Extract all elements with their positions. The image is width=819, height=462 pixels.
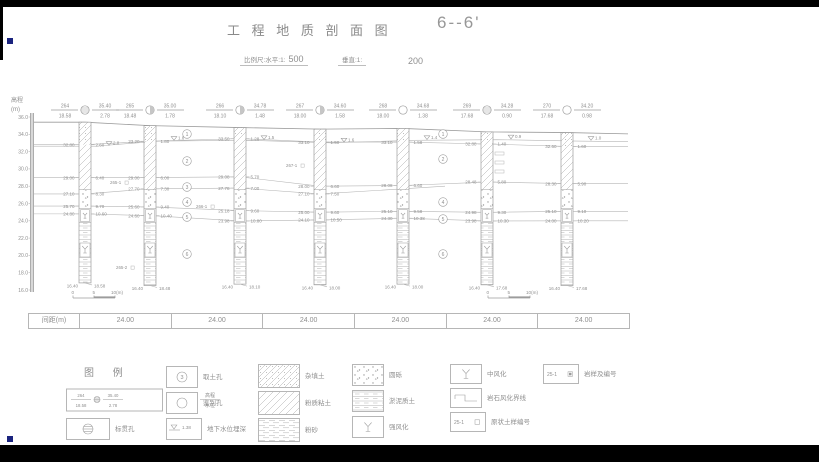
svg-text:5.80: 5.80: [498, 180, 507, 185]
svg-text:1.4: 1.4: [431, 135, 438, 140]
spacing-value-cell: 24.00: [446, 314, 538, 328]
svg-text:9.58: 9.58: [414, 209, 423, 214]
spacing-value-cell: 24.00: [171, 314, 263, 328]
spacing-table-label: 间距(m): [29, 314, 79, 328]
svg-text:9.60: 9.60: [331, 210, 340, 215]
svg-text:5.90: 5.90: [578, 181, 587, 186]
svg-text:9.30: 9.30: [498, 210, 507, 215]
svg-text:33.10: 33.10: [381, 140, 393, 145]
svg-text:18.48: 18.48: [124, 114, 137, 120]
svg-text:9.60: 9.60: [251, 208, 260, 213]
svg-text:1.50: 1.50: [331, 140, 340, 145]
svg-text:6.00: 6.00: [161, 175, 170, 180]
svg-text:6.60: 6.60: [414, 183, 423, 188]
svg-text:2.78: 2.78: [100, 114, 110, 120]
svg-text:7.30: 7.30: [161, 186, 170, 191]
svg-text:2: 2: [442, 157, 445, 163]
svg-text:270: 270: [543, 104, 552, 110]
svg-text:22.0: 22.0: [18, 236, 28, 242]
svg-text:34.68: 34.68: [417, 104, 430, 110]
svg-text:1.58: 1.58: [414, 140, 423, 145]
svg-text:25.18: 25.18: [218, 208, 230, 213]
spacing-value-cell: 24.00: [79, 314, 171, 328]
svg-text:1.6: 1.6: [348, 137, 355, 142]
svg-text:266-1: 266-1: [196, 204, 208, 209]
svg-text:28.00: 28.00: [298, 184, 310, 189]
svg-text:18.48: 18.48: [159, 286, 171, 291]
svg-text:26.0: 26.0: [18, 201, 28, 207]
svg-text:1: 1: [442, 132, 445, 138]
screenshot-canvas: { "page": {"bg":"#ffffff","bar":"#000000…: [0, 0, 819, 462]
svg-text:10.38: 10.38: [414, 216, 426, 221]
svg-text:268: 268: [379, 104, 388, 110]
svg-text:32.0: 32.0: [18, 149, 28, 155]
svg-text:2.8: 2.8: [113, 141, 120, 146]
svg-text:(m): (m): [11, 107, 20, 113]
svg-text:1: 1: [186, 132, 189, 138]
svg-text:16.40: 16.40: [222, 285, 234, 290]
strata-lines: [34, 122, 628, 221]
svg-text:18.58: 18.58: [94, 283, 106, 288]
svg-text:16.40: 16.40: [469, 285, 481, 290]
spacing-value-cell: 24.00: [262, 314, 354, 328]
borehole-265: 26518.4835.001.7833.201.8029.006.0027.70…: [116, 104, 185, 292]
svg-text:0.9: 0.9: [515, 134, 522, 139]
svg-text:267-1: 267-1: [286, 163, 298, 168]
borehole-267: 26718.0034.601.5833.101.5028.006.6027.10…: [286, 104, 355, 291]
svg-text:25.70: 25.70: [63, 204, 75, 209]
svg-text:5.70: 5.70: [251, 175, 260, 180]
svg-text:9.70: 9.70: [96, 204, 105, 209]
svg-text:23.98: 23.98: [218, 219, 230, 224]
svg-text:24.0: 24.0: [18, 219, 28, 225]
svg-text:10.20: 10.20: [578, 219, 590, 224]
edge-marker: [7, 436, 13, 442]
borehole-264: 26418.5835.402.7832.802.6029.006.4027.10…: [51, 104, 120, 289]
svg-text:24.98: 24.98: [465, 210, 477, 215]
svg-text:6: 6: [186, 252, 189, 258]
svg-text:34.20: 34.20: [581, 104, 594, 110]
svg-text:1.48: 1.48: [255, 114, 265, 120]
svg-text:4: 4: [442, 200, 445, 206]
svg-text:3: 3: [186, 185, 189, 191]
svg-text:0.98: 0.98: [582, 114, 592, 120]
svg-text:7.00: 7.00: [251, 186, 260, 191]
svg-text:10.80: 10.80: [251, 219, 263, 224]
svg-text:2.60: 2.60: [96, 142, 105, 147]
svg-text:5: 5: [442, 217, 445, 223]
svg-text:32.88: 32.88: [465, 142, 477, 147]
svg-text:34.28: 34.28: [501, 104, 514, 110]
svg-text:16.40: 16.40: [132, 286, 144, 291]
svg-text:1.5: 1.5: [268, 135, 275, 140]
svg-text:16.40: 16.40: [549, 286, 561, 291]
svg-text:6.60: 6.60: [331, 184, 340, 189]
svg-text:30.0: 30.0: [18, 167, 28, 173]
scale-bar: 0510(m): [72, 290, 124, 298]
svg-text:10.30: 10.30: [498, 219, 510, 224]
borehole-270: 27017.6834.200.9832.601.6028.305.9025.10…: [533, 104, 602, 292]
svg-text:0: 0: [487, 290, 490, 295]
svg-text:17.68: 17.68: [461, 114, 474, 120]
scale-bar: 0510(m): [487, 290, 539, 298]
svg-text:29.00: 29.00: [128, 175, 140, 180]
svg-text:269: 269: [463, 104, 472, 110]
svg-text:24.60: 24.60: [128, 213, 140, 218]
svg-text:18.0: 18.0: [18, 271, 28, 277]
svg-text:10(m): 10(m): [526, 290, 538, 295]
svg-text:28.0: 28.0: [18, 184, 28, 190]
svg-text:29.00: 29.00: [63, 175, 75, 180]
svg-text:6.40: 6.40: [96, 175, 105, 180]
elevation-axis: 高程(m)36.034.032.030.028.026.024.022.020.…: [11, 96, 34, 294]
svg-text:34.60: 34.60: [334, 104, 347, 110]
svg-text:267: 267: [296, 104, 305, 110]
svg-text:28.30: 28.30: [545, 181, 557, 186]
svg-text:29.08: 29.08: [218, 175, 230, 180]
svg-text:10(m): 10(m): [111, 290, 123, 295]
svg-text:16.40: 16.40: [385, 285, 397, 290]
svg-text:24.10: 24.10: [298, 218, 310, 223]
svg-text:高程: 高程: [11, 96, 23, 104]
svg-text:5: 5: [508, 290, 511, 295]
svg-text:18.58: 18.58: [59, 114, 72, 120]
svg-text:17.68: 17.68: [541, 114, 554, 120]
svg-text:7.50: 7.50: [331, 192, 340, 197]
svg-text:0: 0: [72, 290, 75, 295]
svg-text:10.40: 10.40: [161, 213, 173, 218]
svg-text:266: 266: [216, 104, 225, 110]
svg-text:1.60: 1.60: [578, 144, 587, 149]
svg-text:1.28: 1.28: [251, 136, 260, 141]
svg-text:9.10: 9.10: [578, 209, 587, 214]
svg-text:24.00: 24.00: [545, 219, 557, 224]
svg-text:1.38: 1.38: [418, 114, 428, 120]
svg-text:16.0: 16.0: [18, 288, 28, 294]
svg-text:33.10: 33.10: [298, 140, 310, 145]
svg-text:265-2: 265-2: [116, 265, 128, 270]
svg-text:28.08: 28.08: [381, 183, 393, 188]
svg-text:28.48: 28.48: [465, 180, 477, 185]
svg-text:25.00: 25.00: [298, 210, 310, 215]
svg-text:1.58: 1.58: [335, 114, 345, 120]
svg-text:1.0: 1.0: [595, 136, 602, 141]
svg-text:8.30: 8.30: [96, 192, 105, 197]
svg-text:6: 6: [442, 252, 445, 258]
svg-text:265-1: 265-1: [110, 180, 122, 185]
svg-text:18.10: 18.10: [249, 285, 261, 290]
svg-text:5: 5: [93, 290, 96, 295]
svg-text:1.40: 1.40: [498, 142, 507, 147]
svg-text:25.60: 25.60: [128, 205, 140, 210]
svg-text:20.0: 20.0: [18, 253, 28, 259]
svg-text:34.0: 34.0: [18, 132, 28, 138]
svg-text:32.80: 32.80: [63, 142, 75, 147]
svg-text:24.80: 24.80: [63, 212, 75, 217]
borehole-268: 26818.0034.681.3833.101.5828.086.6025.10…: [369, 104, 438, 290]
svg-text:27.78: 27.78: [218, 186, 230, 191]
svg-text:17.68: 17.68: [496, 285, 508, 290]
svg-text:32.60: 32.60: [545, 144, 557, 149]
svg-text:35.00: 35.00: [164, 104, 177, 110]
svg-text:25.10: 25.10: [381, 209, 393, 214]
svg-text:10.60: 10.60: [96, 212, 108, 217]
svg-text:1.78: 1.78: [165, 114, 175, 120]
svg-text:264: 264: [61, 104, 70, 110]
borehole-266: 26618.1034.781.4833.501.2829.085.7027.78…: [206, 104, 275, 290]
svg-text:0.90: 0.90: [502, 114, 512, 120]
svg-text:18.00: 18.00: [329, 285, 341, 290]
svg-text:18.10: 18.10: [214, 114, 227, 120]
svg-text:18.00: 18.00: [412, 285, 424, 290]
svg-text:25.10: 25.10: [545, 209, 557, 214]
svg-text:33.50: 33.50: [218, 136, 230, 141]
svg-text:17.68: 17.68: [576, 286, 588, 291]
svg-text:23.98: 23.98: [465, 219, 477, 224]
svg-text:10.50: 10.50: [331, 218, 343, 223]
svg-text:5: 5: [186, 215, 189, 221]
spacing-table: 间距(m)24.0024.0024.0024.0024.0024.00: [28, 313, 630, 329]
svg-text:24.30: 24.30: [381, 216, 393, 221]
spacing-value-cell: 24.00: [354, 314, 446, 328]
svg-text:2: 2: [186, 159, 189, 165]
svg-text:1.80: 1.80: [161, 139, 170, 144]
spacing-value-cell: 24.00: [537, 314, 629, 328]
svg-text:18.00: 18.00: [377, 114, 390, 120]
svg-text:4: 4: [186, 200, 189, 206]
svg-text:16.40: 16.40: [67, 283, 79, 288]
svg-text:27.70: 27.70: [128, 186, 140, 191]
svg-text:265: 265: [126, 104, 135, 110]
section-drawing: 高程(m)36.034.032.030.028.026.024.022.020.…: [0, 0, 819, 462]
svg-text:36.0: 36.0: [18, 115, 28, 121]
svg-text:35.40: 35.40: [99, 104, 112, 110]
svg-text:27.10: 27.10: [63, 192, 75, 197]
svg-text:33.20: 33.20: [128, 139, 140, 144]
edge-marker: [7, 38, 13, 44]
svg-text:27.10: 27.10: [298, 192, 310, 197]
svg-text:34.78: 34.78: [254, 104, 267, 110]
svg-text:18.00: 18.00: [294, 114, 307, 120]
svg-text:9.40: 9.40: [161, 205, 170, 210]
svg-text:16.40: 16.40: [302, 285, 314, 290]
